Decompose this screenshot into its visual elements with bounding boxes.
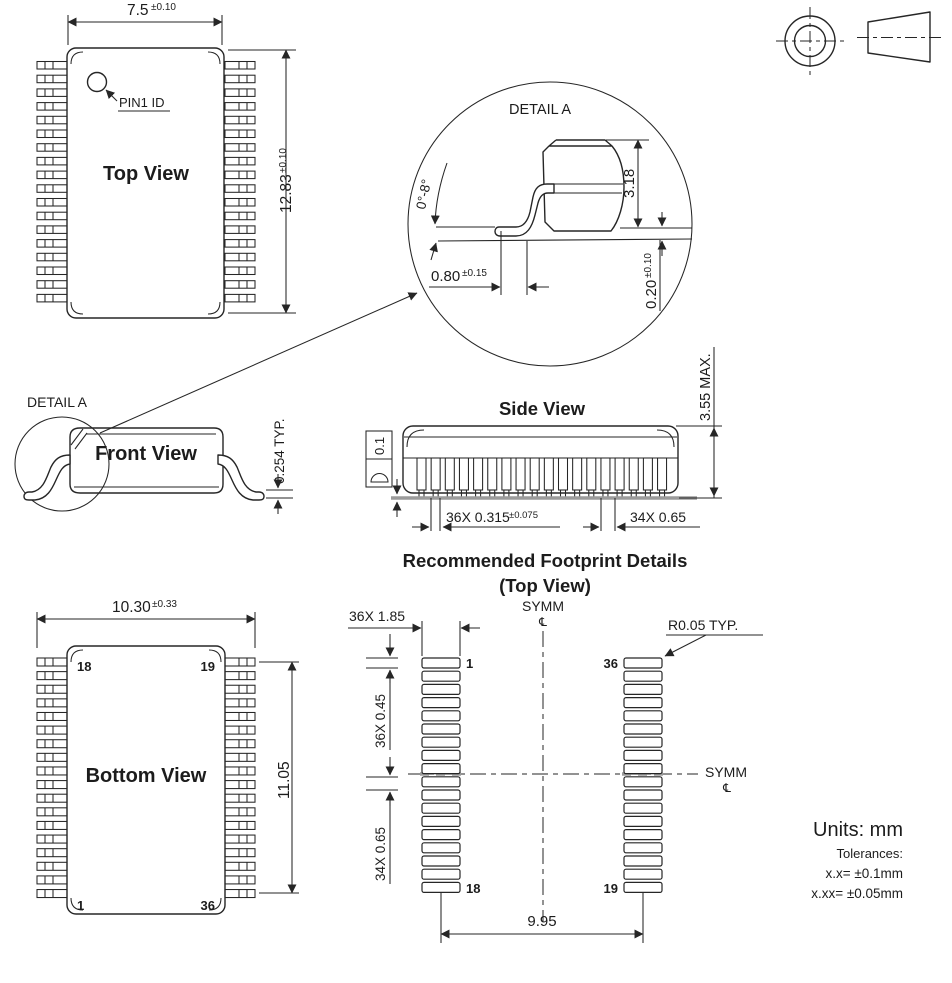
- gull-wing-pin: [225, 753, 255, 761]
- gull-wing-pin: [225, 171, 255, 179]
- side-lead: [474, 458, 483, 490]
- gull-wing-pin: [37, 212, 67, 220]
- tolerances-heading: Tolerances:: [837, 846, 903, 861]
- gull-wing-pin: [225, 199, 255, 207]
- side-lead: [544, 458, 553, 490]
- gull-wing-pin: [225, 767, 255, 775]
- corner-radius-leader: [665, 635, 706, 656]
- gull-wing-pin: [225, 890, 255, 898]
- gull-wing-pin: [225, 116, 255, 124]
- top-width-value: 7.5: [127, 2, 149, 19]
- gull-wing-pin: [37, 171, 67, 179]
- bottom-pin1-label: 1: [77, 898, 84, 913]
- front-view: DETAIL A Front View 0.254 TYP.: [15, 394, 293, 514]
- side-lead: [559, 458, 568, 490]
- body-height-value: 3.18: [621, 169, 638, 198]
- body-height-dim: 3.18: [621, 169, 638, 198]
- gull-wing-pin: [225, 712, 255, 720]
- gull-wing-pin: [225, 876, 255, 884]
- gull-wing-pin: [37, 267, 67, 275]
- side-lead: [643, 458, 652, 490]
- side-lead: [516, 458, 525, 490]
- gull-wing-pin: [37, 835, 67, 843]
- footprint-view: Recommended Footprint Details (Top View)…: [348, 550, 763, 943]
- centerline-symbol-right: ℄: [722, 781, 731, 795]
- pad-pitch-dim: 34X 0.65: [373, 827, 388, 881]
- lead-width-tol: ±0.075: [509, 510, 538, 521]
- standoff-dim: 0.20 ±0.10: [643, 253, 660, 309]
- gull-wing-pin: [37, 185, 67, 193]
- gull-wing-pin: [37, 294, 67, 302]
- gull-wing-pin: [225, 808, 255, 816]
- gull-wing-pin: [225, 294, 255, 302]
- footprint-pad: [422, 764, 460, 774]
- pad-length-dim: 36X 0.45: [373, 694, 388, 748]
- bottom-view-pins-right: [225, 658, 255, 898]
- top-view: PIN1 ID Top View 7.5 ±0.10 12.83 ±0.10: [37, 2, 296, 318]
- bottom-view-pins-left: [37, 658, 67, 898]
- gull-wing-pin: [37, 240, 67, 248]
- bottom-width-value: 10.30: [112, 599, 151, 616]
- tolerance-note-1: x.x= ±0.1mm: [825, 866, 903, 881]
- gull-wing-pin: [37, 89, 67, 97]
- gull-wing-pin: [225, 862, 255, 870]
- pad-pitch-value: 34X 0.65: [373, 827, 388, 881]
- detail-lead-through-lines: [547, 184, 623, 193]
- front-view-title: Front View: [95, 443, 197, 465]
- top-height-value: 12.83: [278, 174, 295, 213]
- footprint-pad: [422, 698, 460, 708]
- gull-wing-pin: [37, 876, 67, 884]
- top-height-tol: ±0.10: [278, 148, 289, 173]
- foot-length-dim: 0.80 ±0.15: [431, 268, 487, 285]
- gull-wing-pin: [37, 253, 67, 260]
- gull-wing-pin: [225, 740, 255, 748]
- pin1-id-dot: [88, 73, 107, 92]
- lead-thickness-dim: 0.254 TYP.: [272, 418, 287, 484]
- package-mechanical-drawing: PIN1 ID Top View 7.5 ±0.10 12.83 ±0.10 D…: [0, 0, 952, 983]
- lead-width-value: 36X 0.315: [446, 509, 510, 525]
- footprint-pad: [624, 830, 662, 840]
- units-note: Units: mm: [813, 819, 903, 841]
- gull-wing-pin: [225, 130, 255, 138]
- gull-wing-pin: [225, 794, 255, 802]
- footprint-pin36-label: 36: [604, 656, 618, 671]
- gull-wing-pin: [37, 75, 67, 83]
- footprint-pad: [624, 658, 662, 668]
- front-detail-a-label: DETAIL A: [27, 394, 88, 410]
- pad-span-value: 9.95: [527, 913, 556, 930]
- footprint-pad: [624, 843, 662, 853]
- side-lead: [488, 458, 497, 490]
- pad-width-value: 36X 1.85: [349, 608, 405, 624]
- lead-angle-value: 0°-8°: [413, 178, 434, 211]
- side-lead: [417, 458, 426, 490]
- side-lead: [530, 458, 539, 490]
- side-view-body: [403, 426, 678, 493]
- top-view-title: Top View: [103, 163, 189, 185]
- gull-wing-pin: [225, 699, 255, 707]
- angle-arc: [435, 163, 447, 224]
- side-lead: [502, 458, 511, 490]
- foot-length-value: 0.80: [431, 268, 460, 285]
- pad-length-value: 36X 0.45: [373, 694, 388, 748]
- gull-wing-pin: [37, 672, 67, 680]
- side-lead: [601, 458, 610, 490]
- side-lead: [573, 458, 582, 490]
- symm-label-top: SYMM: [522, 598, 564, 614]
- footprint-pad: [624, 684, 662, 694]
- gull-wing-pin: [225, 240, 255, 248]
- footprint-pad: [624, 790, 662, 800]
- coplanarity-dim: 0.1: [372, 437, 387, 455]
- side-lead: [658, 458, 667, 490]
- gull-wing-pin: [37, 157, 67, 165]
- footprint-pad: [624, 737, 662, 747]
- gull-wing-pin: [37, 62, 67, 70]
- gull-wing-pin: [225, 185, 255, 193]
- bottom-pin19-label: 19: [201, 659, 215, 674]
- side-lead: [629, 458, 638, 490]
- tolerance-note-2: x.xx= ±0.05mm: [811, 886, 903, 901]
- footprint-pad: [422, 684, 460, 694]
- footprint-pad: [624, 764, 662, 774]
- side-lead: [431, 458, 440, 490]
- top-view-pins-right: [225, 62, 255, 302]
- footprint-pad: [422, 750, 460, 760]
- gull-wing-pin: [37, 144, 67, 152]
- third-angle-projection-symbol: [776, 7, 941, 75]
- gull-wing-pin: [225, 835, 255, 843]
- side-view-leads: [417, 458, 667, 498]
- gull-wing-pin: [37, 808, 67, 816]
- side-pitch-value: 34X 0.65: [630, 509, 686, 525]
- gull-wing-pin: [37, 103, 67, 111]
- gull-wing-pin: [225, 62, 255, 70]
- side-lead: [459, 458, 468, 490]
- lead-span-dim: 11.05: [276, 761, 293, 799]
- footprint-pad: [624, 711, 662, 721]
- side-view-title: Side View: [499, 398, 586, 419]
- footprint-pad: [422, 658, 460, 668]
- max-height-value: 3.55 MAX.: [698, 353, 714, 421]
- detail-a-leader-arrow: [100, 293, 417, 433]
- front-right-lead: [218, 455, 264, 500]
- footprint-pin1-label: 1: [466, 656, 473, 671]
- max-height-dim: 3.55 MAX.: [698, 353, 714, 421]
- footprint-pin19-label: 19: [604, 881, 618, 896]
- standoff-value: 0.20: [643, 280, 660, 309]
- gull-wing-pin: [37, 740, 67, 748]
- gull-wing-pin: [37, 712, 67, 720]
- footprint-pad: [422, 882, 460, 892]
- gull-wing-pin: [37, 821, 67, 829]
- footprint-pad: [422, 737, 460, 747]
- footprint-pad: [624, 724, 662, 734]
- lead-thickness-value: 0.254 TYP.: [272, 418, 287, 484]
- symm-label-right: SYMM: [705, 764, 747, 780]
- gull-wing-pin: [37, 794, 67, 802]
- gull-wing-pin: [225, 658, 255, 666]
- coplanarity-value: 0.1: [372, 437, 387, 455]
- footprint-pad: [422, 856, 460, 866]
- drawing-svg: PIN1 ID Top View 7.5 ±0.10 12.83 ±0.10 D…: [0, 0, 952, 983]
- gull-wing-pin: [37, 890, 67, 898]
- top-height-dim: 12.83 ±0.10: [278, 148, 295, 213]
- footprint-pad: [624, 803, 662, 813]
- footprint-title-line2: (Top View): [499, 575, 591, 596]
- gull-wing-pin: [225, 75, 255, 83]
- top-view-pins-left: [37, 62, 67, 302]
- gull-wing-pin: [225, 781, 255, 789]
- bottom-width-tol: ±0.33: [152, 599, 177, 610]
- bottom-view: 18 19 1 36 Bottom View 10.30 ±0.33 11.05: [37, 599, 299, 914]
- footprint-pin18-label: 18: [466, 881, 480, 896]
- detail-a-circle: [408, 82, 692, 366]
- gull-wing-pin: [225, 157, 255, 165]
- gull-wing-pin: [225, 144, 255, 152]
- gull-wing-pin: [37, 281, 67, 289]
- top-width-tol: ±0.10: [151, 2, 176, 13]
- gull-wing-pin: [225, 226, 255, 234]
- gull-wing-pin: [225, 821, 255, 829]
- gull-wing-pin: [37, 781, 67, 789]
- footprint-pad: [624, 671, 662, 681]
- footprint-pad: [422, 724, 460, 734]
- footprint-pad: [624, 777, 662, 787]
- footprint-title-line1: Recommended Footprint Details: [403, 550, 688, 571]
- footprint-pad: [624, 869, 662, 879]
- gull-wing-pin: [37, 849, 67, 857]
- gull-wing-pin: [225, 89, 255, 97]
- footprint-pad: [422, 843, 460, 853]
- gull-wing-pin: [225, 672, 255, 680]
- notes-block: Units: mm Tolerances: x.x= ±0.1mm x.xx= …: [811, 819, 903, 901]
- footprint-pad: [422, 711, 460, 721]
- front-left-lead: [24, 455, 70, 500]
- angle-arrow-lower: [431, 243, 436, 260]
- footprint-pad: [422, 869, 460, 879]
- detail-a-title: DETAIL A: [509, 102, 571, 118]
- standoff-tol: ±0.10: [643, 253, 654, 278]
- top-width-dim: 7.5 ±0.10: [127, 2, 176, 19]
- gull-wing-pin: [225, 281, 255, 289]
- gull-wing-pin: [37, 767, 67, 775]
- footprint-pad: [422, 671, 460, 681]
- side-view: Side View 0.1 36X 0.315 ±0.075 34X 0.65: [366, 347, 722, 531]
- gull-wing-pin: [37, 130, 67, 138]
- side-lead: [615, 458, 624, 490]
- pin1-leader-arrow: [106, 90, 117, 101]
- centerline-symbol-top: ℄: [538, 615, 547, 629]
- side-lead: [445, 458, 454, 490]
- pin1-id-label: PIN1 ID: [119, 95, 165, 110]
- gull-wing-pin: [225, 253, 255, 260]
- gull-wing-pin: [37, 753, 67, 761]
- gull-wing-pin: [37, 862, 67, 870]
- footprint-pad: [422, 790, 460, 800]
- gull-wing-pin: [225, 103, 255, 111]
- bottom-width-dim: 10.30 ±0.33: [112, 599, 177, 616]
- bottom-view-title: Bottom View: [86, 765, 207, 787]
- bottom-pin18-label: 18: [77, 659, 91, 674]
- lead-span-value: 11.05: [276, 761, 293, 799]
- gull-wing-pin: [225, 849, 255, 857]
- lead-width-dim: 36X 0.315 ±0.075: [446, 509, 538, 525]
- gull-wing-pin: [37, 226, 67, 234]
- corner-radius-value: R0.05 TYP.: [668, 617, 738, 633]
- gull-wing-pin: [37, 699, 67, 707]
- gull-wing-pin: [225, 726, 255, 734]
- side-corner-arcs: [407, 430, 674, 447]
- gull-wing-pin: [37, 116, 67, 124]
- footprint-pad: [624, 882, 662, 892]
- gull-wing-pin: [37, 199, 67, 207]
- gull-wing-pin: [37, 685, 67, 693]
- detail-body-edge: [543, 140, 624, 231]
- foot-length-tol: ±0.15: [462, 268, 487, 279]
- gull-wing-pin: [37, 658, 67, 666]
- bottom-pin36-label: 36: [201, 898, 215, 913]
- footprint-pad: [422, 803, 460, 813]
- lead-angle-dim: 0°-8°: [413, 178, 434, 211]
- gull-wing-pin: [225, 685, 255, 693]
- footprint-pad: [624, 856, 662, 866]
- footprint-pad: [624, 698, 662, 708]
- footprint-pad: [422, 777, 460, 787]
- footprint-pad: [422, 816, 460, 826]
- gull-wing-pin: [225, 267, 255, 275]
- detail-a-view: DETAIL A 0°-8° 3.18 0.20 ±0.10 0.80: [100, 82, 692, 433]
- footprint-pad: [422, 830, 460, 840]
- footprint-pad: [624, 816, 662, 826]
- side-lead: [587, 458, 596, 490]
- flatness-symbol-icon: [371, 474, 388, 483]
- gull-wing-pin: [37, 726, 67, 734]
- gull-wing-pin: [225, 212, 255, 220]
- footprint-pad: [624, 750, 662, 760]
- seating-plane-line: [438, 239, 692, 241]
